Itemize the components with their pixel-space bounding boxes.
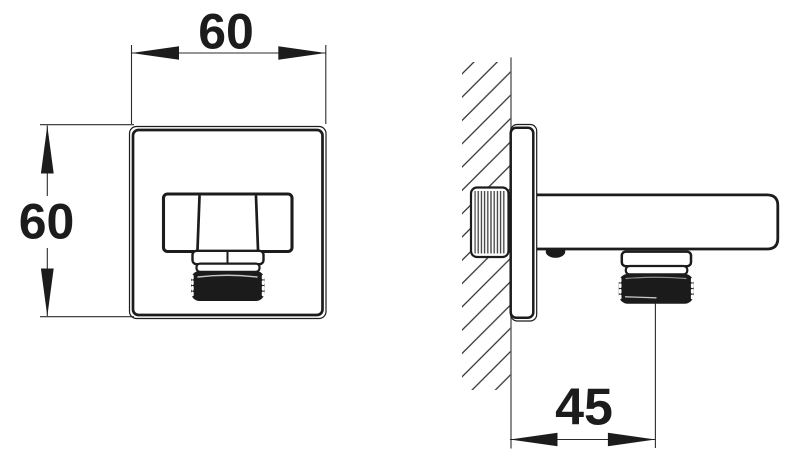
front-view — [130, 127, 327, 319]
shower-outlet-technical-drawing: 60 60 — [0, 0, 800, 462]
arrowhead-left — [510, 433, 558, 446]
arrowhead-right — [608, 433, 656, 446]
arrowhead-up — [41, 126, 54, 174]
side-plate — [511, 128, 534, 318]
arrowhead-down — [41, 269, 54, 317]
arrowhead-right — [278, 46, 326, 59]
threaded-inlet-texture — [475, 191, 506, 254]
dimension-label-offset: 45 — [555, 379, 613, 437]
dimension-label-height: 60 — [19, 194, 75, 250]
front-dimension-width: 60 — [132, 4, 326, 125]
side-collar-ring — [626, 266, 688, 274]
side-view — [462, 58, 778, 448]
side-collar — [622, 252, 691, 267]
front-nut — [164, 194, 293, 252]
side-dimension-offset: 45 — [510, 304, 655, 449]
arm — [535, 195, 778, 249]
front-collar-ring — [197, 264, 260, 272]
arrowhead-left — [132, 46, 180, 59]
front-dimension-height: 60 — [19, 125, 134, 317]
technical-drawing-canvas: 60 60 — [0, 0, 800, 462]
dimension-label-width: 60 — [198, 4, 254, 60]
